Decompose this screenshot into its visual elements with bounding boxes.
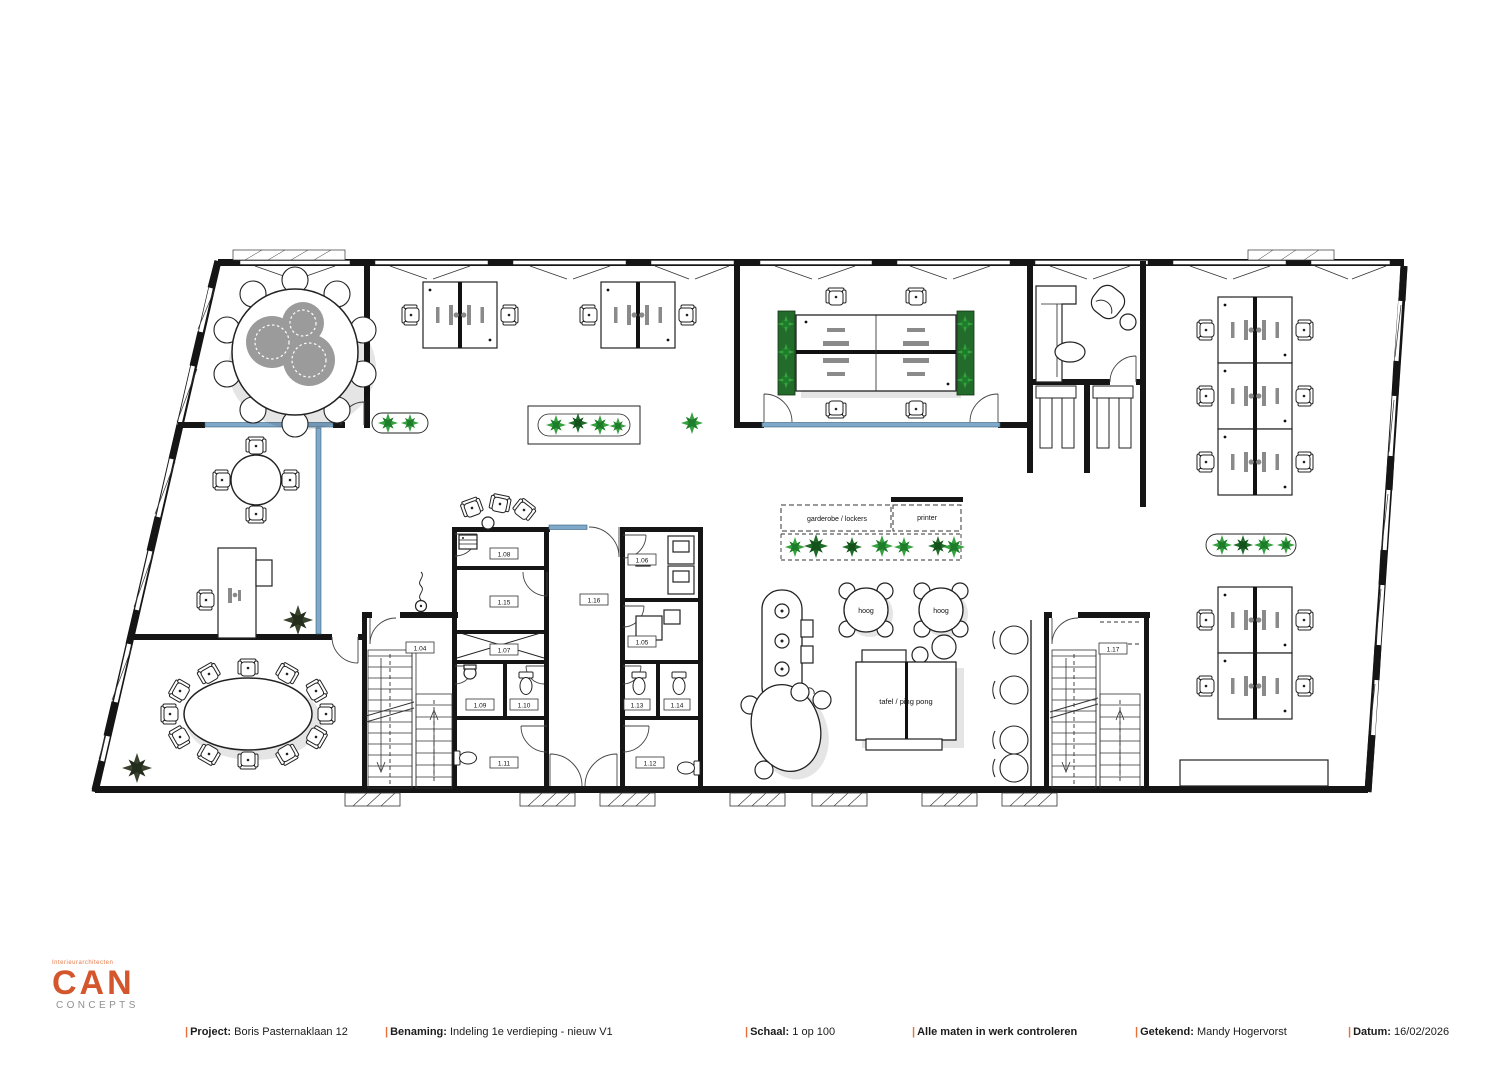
room-label-1-11: 1.11	[490, 757, 518, 768]
room-label-1-09: 1.09	[466, 699, 494, 710]
room-label-1-17: 1.17	[1099, 643, 1127, 654]
ping-pong-table	[856, 635, 964, 750]
desk-bank-4	[1197, 587, 1313, 719]
title-note: |Alle maten in werk controleren	[912, 1026, 1077, 1038]
staircase-left	[366, 650, 452, 788]
desk-group-2	[580, 282, 696, 348]
title-schaal: |Schaal: 1 op 100	[745, 1026, 835, 1038]
wardrobe-printer	[781, 505, 966, 560]
planter-right	[1206, 534, 1296, 557]
svg-text:1.06: 1.06	[636, 558, 649, 565]
title-block: |Project: Boris Pasternaklaan 12 |Benami…	[0, 1026, 1507, 1048]
printer-label: printer	[917, 515, 938, 522]
waiting-chairs	[460, 493, 538, 529]
floorplan-page: 1.04 1.08 1.15 1.07 1.16 1.06 1.05 1.09 …	[0, 0, 1507, 1067]
title-getekend: |Getekend: Mandy Hogervorst	[1135, 1026, 1287, 1038]
room-label-1-13: 1.13	[624, 699, 650, 710]
plant-single	[680, 411, 705, 436]
desk-bank-6	[1197, 297, 1313, 495]
floorplan-drawing: 1.04 1.08 1.15 1.07 1.16 1.06 1.05 1.09 …	[0, 0, 1507, 1067]
svg-text:1.08: 1.08	[498, 552, 511, 559]
hoog-label-1: hoog	[858, 608, 874, 615]
title-project: |Project: Boris Pasternaklaan 12	[185, 1026, 348, 1038]
open-casement-symbols	[255, 266, 1386, 279]
planter-small-left	[372, 412, 428, 435]
svg-text:1.17: 1.17	[1107, 647, 1120, 654]
sideboard	[1180, 760, 1328, 786]
company-logo: Interieurarchitecten CAN CONCEPTS	[52, 960, 212, 1011]
room-label-1-14: 1.14	[664, 699, 690, 710]
pouf-row	[993, 626, 1028, 782]
coffee-point	[416, 572, 427, 612]
room-label-1-04: 1.04	[406, 642, 434, 653]
ping-pong-label: tafel / ping pong	[879, 697, 932, 706]
room-label-1-12: 1.12	[636, 757, 664, 768]
svg-text:1.15: 1.15	[498, 600, 511, 607]
logo-name: CAN	[52, 966, 212, 1000]
svg-text:1.05: 1.05	[636, 640, 649, 647]
svg-text:1.14: 1.14	[671, 703, 684, 710]
svg-text:1.12: 1.12	[644, 761, 657, 768]
room-label-1-08: 1.08	[490, 548, 518, 559]
meeting-room-desks	[776, 288, 974, 418]
single-desk	[197, 548, 272, 638]
title-datum: |Datum: 16/02/2026	[1348, 1026, 1449, 1038]
svg-text:1.16: 1.16	[588, 598, 601, 605]
svg-text:1.13: 1.13	[631, 703, 644, 710]
logo-subtitle: CONCEPTS	[56, 1000, 212, 1011]
title-benaming: |Benaming: Indeling 1e verdieping - nieu…	[385, 1026, 613, 1038]
dark-plant-2	[120, 751, 154, 785]
oval-meeting-table	[161, 659, 335, 769]
lounge-blob-table	[741, 677, 839, 788]
small-round-table	[213, 437, 299, 523]
svg-text:1.11: 1.11	[498, 761, 511, 768]
svg-text:1.10: 1.10	[518, 703, 531, 710]
planter-box-center	[528, 406, 640, 444]
hoog-label-2: hoog	[933, 608, 949, 615]
garderobe-label: garderobe / lockers	[807, 516, 867, 523]
desk-group-1	[402, 282, 518, 348]
room-label-1-16: 1.16	[580, 594, 608, 605]
lounge-room	[1036, 281, 1136, 382]
room-label-1-05: 1.05	[628, 636, 656, 647]
room-label-1-06: 1.06	[628, 554, 656, 565]
room-label-1-07: 1.07	[490, 644, 518, 655]
svg-text:1.07: 1.07	[498, 648, 511, 655]
svg-text:1.09: 1.09	[474, 703, 487, 710]
room-label-1-10: 1.10	[510, 699, 538, 710]
room-label-1-15: 1.15	[490, 596, 518, 607]
svg-text:1.04: 1.04	[414, 646, 427, 653]
round-table-room	[214, 267, 376, 437]
dark-plant-1	[281, 603, 315, 637]
